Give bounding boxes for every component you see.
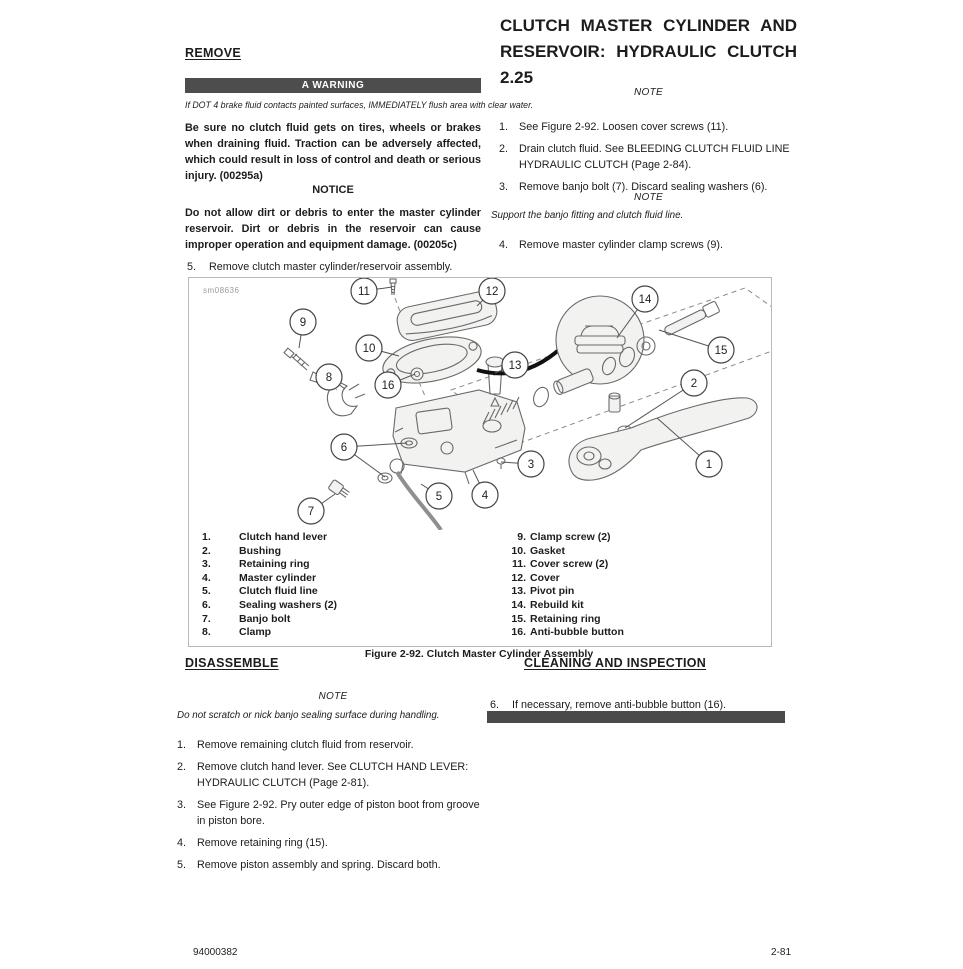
legend-label: Clutch hand lever <box>239 531 327 545</box>
legend-item: 5.Clutch fluid line <box>202 585 502 599</box>
note-body-2: Support the banjo fitting and clutch flu… <box>491 210 791 221</box>
legend-label: Pivot pin <box>530 585 574 599</box>
callout-4: 4 <box>472 482 498 508</box>
legend-label: Sealing washers (2) <box>239 599 337 613</box>
notice-body: Do not allow dirt or debris to enter the… <box>185 205 481 253</box>
legend-number: 5. <box>202 585 224 599</box>
legend-item: 16.Anti-bubble button <box>502 626 762 640</box>
legend-number: 3. <box>202 558 224 572</box>
figure-2-92: sm08636 <box>188 277 772 647</box>
legend-label: Rebuild kit <box>530 599 584 613</box>
remove-step-4: 4. Remove master cylinder clamp screws (… <box>499 238 799 253</box>
cleaning-heading: CLEANING AND INSPECTION <box>524 656 706 670</box>
legend-label: Gasket <box>530 545 565 559</box>
disassemble-heading: DISASSEMBLE <box>185 656 279 670</box>
step-text: Remove remaining clutch fluid from reser… <box>197 737 482 753</box>
note-label-1: NOTE <box>500 87 797 98</box>
svg-text:5: 5 <box>436 491 442 503</box>
legend-number: 4. <box>202 572 224 586</box>
callout-8: 8 <box>316 364 342 390</box>
legend-number: 7. <box>202 613 224 627</box>
legend-number: 12. <box>502 572 526 586</box>
legend-item: 6.Sealing washers (2) <box>202 599 502 613</box>
legend-item: 3.Retaining ring <box>202 558 502 572</box>
svg-text:1: 1 <box>706 459 712 471</box>
note-label-3: NOTE <box>185 691 481 702</box>
svg-text:10: 10 <box>363 343 376 355</box>
svg-text:6: 6 <box>341 442 347 454</box>
footer-part-number: 94000382 <box>193 947 238 958</box>
callout-2: 2 <box>681 370 707 396</box>
legend-label: Clutch fluid line <box>239 585 318 599</box>
legend-label: Cover <box>530 572 560 586</box>
step-number: 4. <box>177 835 197 851</box>
note-label-2: NOTE <box>500 192 797 203</box>
svg-text:2: 2 <box>691 378 697 390</box>
warning-banner: A WARNING <box>185 78 481 93</box>
legend-label: Clamp <box>239 626 271 640</box>
svg-text:8: 8 <box>326 372 332 384</box>
legend-item: 9.Clamp screw (2) <box>502 531 762 545</box>
inset-detail-art <box>556 296 644 384</box>
callout-10: 10 <box>356 335 382 361</box>
legend-label: Bushing <box>239 545 281 559</box>
figure-legend: 1.Clutch hand lever 2.Bushing 3.Retainin… <box>189 531 771 640</box>
callout-1: 1 <box>696 451 722 477</box>
warning-italic-text: If DOT 4 brake fluid contacts painted su… <box>185 100 533 110</box>
legend-item: 11.Cover screw (2) <box>502 558 762 572</box>
hand-lever-art <box>569 398 757 480</box>
legend-number: 16. <box>502 626 526 640</box>
step-number: 1. <box>177 737 197 753</box>
legend-number: 13. <box>502 585 526 599</box>
master-cylinder-art <box>393 390 525 484</box>
callout-15: 15 <box>708 337 734 363</box>
step-number: 1. <box>499 119 519 135</box>
legend-number: 2. <box>202 545 224 559</box>
legend-label: Retaining ring <box>239 558 310 572</box>
list-item: 5. Remove piston assembly and spring. Di… <box>177 857 482 873</box>
svg-text:9: 9 <box>300 317 306 329</box>
legend-label: Master cylinder <box>239 572 316 586</box>
list-item: 3. See Figure 2-92. Pry outer edge of pi… <box>177 797 482 829</box>
legend-number: 6. <box>202 599 224 613</box>
disassemble-steps-list: 1. Remove remaining clutch fluid from re… <box>177 737 482 879</box>
callout-6: 6 <box>331 434 357 460</box>
step-text: Remove clutch hand lever. See CLUTCH HAN… <box>197 759 482 791</box>
legend-number: 10. <box>502 545 526 559</box>
step-text: Remove piston assembly and spring. Disca… <box>197 857 482 873</box>
legend-number: 1. <box>202 531 224 545</box>
step-text: Remove master cylinder clamp screws (9). <box>519 238 723 253</box>
legend-label: Banjo bolt <box>239 613 290 627</box>
callout-14: 14 <box>632 286 658 312</box>
svg-text:16: 16 <box>382 380 395 392</box>
step-number: 2. <box>177 759 197 791</box>
legend-item: 12.Cover <box>502 572 762 586</box>
legend-number: 11. <box>502 558 526 572</box>
legend-item: 13.Pivot pin <box>502 585 762 599</box>
exploded-view-diagram: 11129141015138162631547 <box>189 278 771 530</box>
svg-text:11: 11 <box>358 286 370 298</box>
step-number: 3. <box>177 797 197 829</box>
legend-left-column: 1.Clutch hand lever 2.Bushing 3.Retainin… <box>202 531 502 640</box>
step-text: Remove clutch master cylinder/reservoir … <box>209 260 452 275</box>
step-number: 4. <box>499 238 519 253</box>
manual-page: CLUTCH MASTER CYLINDER AND RESERVOIR: HY… <box>0 0 963 969</box>
legend-item: 8.Clamp <box>202 626 502 640</box>
remove-heading: REMOVE <box>185 46 241 60</box>
svg-text:12: 12 <box>486 286 499 298</box>
legend-right-column: 9.Clamp screw (2) 10.Gasket 11.Cover scr… <box>502 531 762 640</box>
svg-text:7: 7 <box>308 506 314 518</box>
legend-label: Cover screw (2) <box>530 558 608 572</box>
legend-item: 1.Clutch hand lever <box>202 531 502 545</box>
list-item: 2. Drain clutch fluid. See BLEEDING CLUT… <box>499 141 799 173</box>
list-item: 1. Remove remaining clutch fluid from re… <box>177 737 482 753</box>
legend-label: Anti-bubble button <box>530 626 624 640</box>
page-title-line2: RESERVOIR: HYDRAULIC CLUTCH <box>500 39 797 65</box>
callout-16: 16 <box>375 372 401 398</box>
svg-text:14: 14 <box>639 294 652 306</box>
remove-steps-list: 1. See Figure 2-92. Loosen cover screws … <box>499 119 799 201</box>
step-number: 5. <box>187 260 209 275</box>
footer-page-number: 2-81 <box>771 947 791 958</box>
legend-item: 10.Gasket <box>502 545 762 559</box>
step-text: Drain clutch fluid. See BLEEDING CLUTCH … <box>519 141 799 173</box>
redacted-bar <box>487 711 785 723</box>
list-item: 2. Remove clutch hand lever. See CLUTCH … <box>177 759 482 791</box>
legend-number: 8. <box>202 626 224 640</box>
legend-number: 15. <box>502 613 526 627</box>
remove-step-5: 5. Remove clutch master cylinder/reservo… <box>187 260 487 275</box>
callout-13: 13 <box>502 352 528 378</box>
step-number: 2. <box>499 141 519 173</box>
svg-text:15: 15 <box>715 345 728 357</box>
warning-bold-text: Be sure no clutch fluid gets on tires, w… <box>185 120 481 184</box>
callout-3: 3 <box>518 451 544 477</box>
note-body-3: Do not scratch or nick banjo sealing sur… <box>177 710 487 721</box>
svg-text:4: 4 <box>482 490 489 502</box>
step-number: 5. <box>177 857 197 873</box>
legend-item: 7.Banjo bolt <box>202 613 502 627</box>
callout-5: 5 <box>426 483 452 509</box>
svg-text:3: 3 <box>528 459 534 471</box>
callout-12: 12 <box>479 278 505 304</box>
legend-item: 2.Bushing <box>202 545 502 559</box>
list-item: 1. See Figure 2-92. Loosen cover screws … <box>499 119 799 135</box>
legend-number: 14. <box>502 599 526 613</box>
svg-text:13: 13 <box>509 360 522 372</box>
legend-label: Clamp screw (2) <box>530 531 611 545</box>
callout-9: 9 <box>290 309 316 335</box>
legend-item: 4.Master cylinder <box>202 572 502 586</box>
page-title-line1: CLUTCH MASTER CYLINDER AND <box>500 13 797 39</box>
callout-11: 11 <box>351 278 377 304</box>
step-text: See Figure 2-92. Pry outer edge of pisto… <box>197 797 482 829</box>
legend-label: Retaining ring <box>530 613 601 627</box>
callout-7: 7 <box>298 498 324 524</box>
legend-item: 14.Rebuild kit <box>502 599 762 613</box>
list-item: 4. Remove retaining ring (15). <box>177 835 482 851</box>
step-text: See Figure 2-92. Loosen cover screws (11… <box>519 119 799 135</box>
exploded-diagram-art <box>284 279 771 530</box>
bushing-art <box>609 393 632 434</box>
legend-number: 9. <box>502 531 526 545</box>
notice-heading: NOTICE <box>185 184 481 196</box>
step-text: Remove retaining ring (15). <box>197 835 482 851</box>
page-title: CLUTCH MASTER CYLINDER AND RESERVOIR: HY… <box>500 13 797 91</box>
legend-item: 15.Retaining ring <box>502 613 762 627</box>
